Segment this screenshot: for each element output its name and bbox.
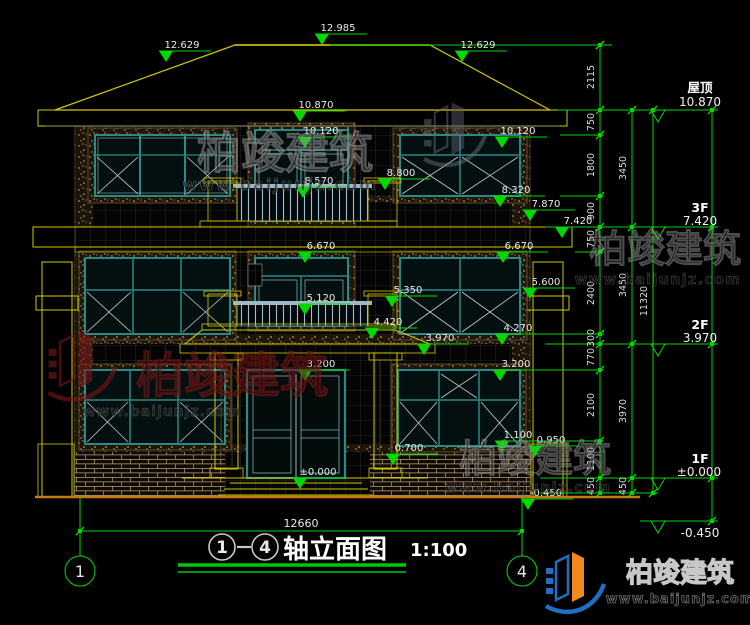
- dim-2100: 2100: [586, 393, 597, 417]
- dim-300: 300: [586, 329, 597, 347]
- mark-10870: 10.870: [299, 100, 334, 111]
- level-1f-label: 1F: [691, 451, 708, 466]
- level-3f-label: 3F: [691, 200, 708, 215]
- axis-marker-1: 1: [75, 562, 85, 581]
- level-3f-value: 7.420: [683, 214, 717, 228]
- watermark-url: www.baijunjz.com: [182, 175, 377, 194]
- mark-0700: 0.700: [395, 443, 424, 454]
- drawing-title-block: 1 4 轴立面图 1:100: [178, 534, 467, 572]
- dim-width-12660: 12660: [284, 517, 319, 530]
- dim-750-a: 750: [586, 113, 597, 131]
- mark-0000: ±0.000: [299, 467, 336, 478]
- mark-8320: 8.320: [502, 185, 531, 196]
- mark-6670-center: 6.670: [307, 241, 336, 252]
- mark-12629-right: 12.629: [461, 40, 496, 51]
- mark-5600: 5.600: [532, 277, 561, 288]
- watermark-name: 柏竣建筑: [136, 348, 328, 404]
- watermark-name: 柏竣建筑: [459, 437, 611, 481]
- watermark-url: www.baijunjz.com: [445, 480, 612, 496]
- mark-4420: 4.420: [374, 317, 403, 328]
- dim-total-11320: 11320: [639, 286, 650, 316]
- brand-logo: 柏竣建筑 www.baijunjz.com: [546, 552, 750, 612]
- dim-2115: 2115: [586, 65, 597, 89]
- level-roof-label: 屋顶: [687, 80, 713, 95]
- title-axis-from: 1: [216, 538, 228, 558]
- mark-5120: 5.120: [307, 293, 336, 304]
- dim-3450-upper: 3450: [618, 156, 629, 180]
- mark-12629-left: 12.629: [165, 40, 200, 51]
- watermark-url: www.baijunjz.com: [83, 404, 242, 420]
- mark-5350: 5.350: [394, 285, 423, 296]
- dim-1800: 1800: [586, 153, 597, 177]
- cad-elevation-drawing: 12.985 12.629 12.629 10.870 10.120 10.12…: [0, 0, 750, 625]
- mark-4270: 4.270: [504, 323, 533, 334]
- mark-7870: 7.870: [532, 199, 561, 210]
- drawing-scale: 1:100: [410, 540, 467, 561]
- dim-3970: 3970: [618, 399, 629, 423]
- axis-marker-4: 4: [517, 562, 527, 581]
- brand-name: 柏竣建筑: [626, 557, 734, 589]
- watermark-url: www.baijunjz.com: [575, 272, 742, 288]
- dim-770: 770: [586, 348, 597, 366]
- level-base-value: -0.450: [681, 526, 720, 540]
- level-1f-value: ±0.000: [677, 465, 721, 479]
- level-roof-value: 10.870: [679, 95, 721, 109]
- mark-3200-right: 3.200: [502, 359, 531, 370]
- mark-10120-right: 10.120: [501, 126, 536, 137]
- dim-450-b: 450: [618, 477, 629, 495]
- brand-logo-icon: [546, 552, 604, 612]
- level-2f-value: 3.970: [683, 331, 717, 345]
- drawing-title: 轴立面图: [283, 534, 387, 565]
- mark-8800: 8.800: [387, 168, 416, 179]
- mark-6670-right: 6.670: [505, 241, 534, 252]
- level-2f-label: 2F: [691, 317, 708, 332]
- mark-12985: 12.985: [321, 23, 356, 34]
- watermark-name: 柏竣建筑: [197, 128, 373, 179]
- dim-900: 900: [586, 202, 597, 220]
- brand-url: www.baijunjz.com: [606, 592, 750, 607]
- title-axis-to: 4: [259, 538, 271, 558]
- drawing-canvas: 12.985 12.629 12.629 10.870 10.120 10.12…: [0, 0, 750, 625]
- watermark-mid-right: 柏竣建筑 www.baijunjz.com: [575, 227, 742, 288]
- window-2f-left: [79, 251, 236, 340]
- mark-3970: 3.970: [426, 333, 455, 344]
- watermark-name: 柏竣建筑: [589, 227, 741, 271]
- watermark-bottom-center: 柏竣建筑 www.baijunjz.com: [445, 437, 612, 496]
